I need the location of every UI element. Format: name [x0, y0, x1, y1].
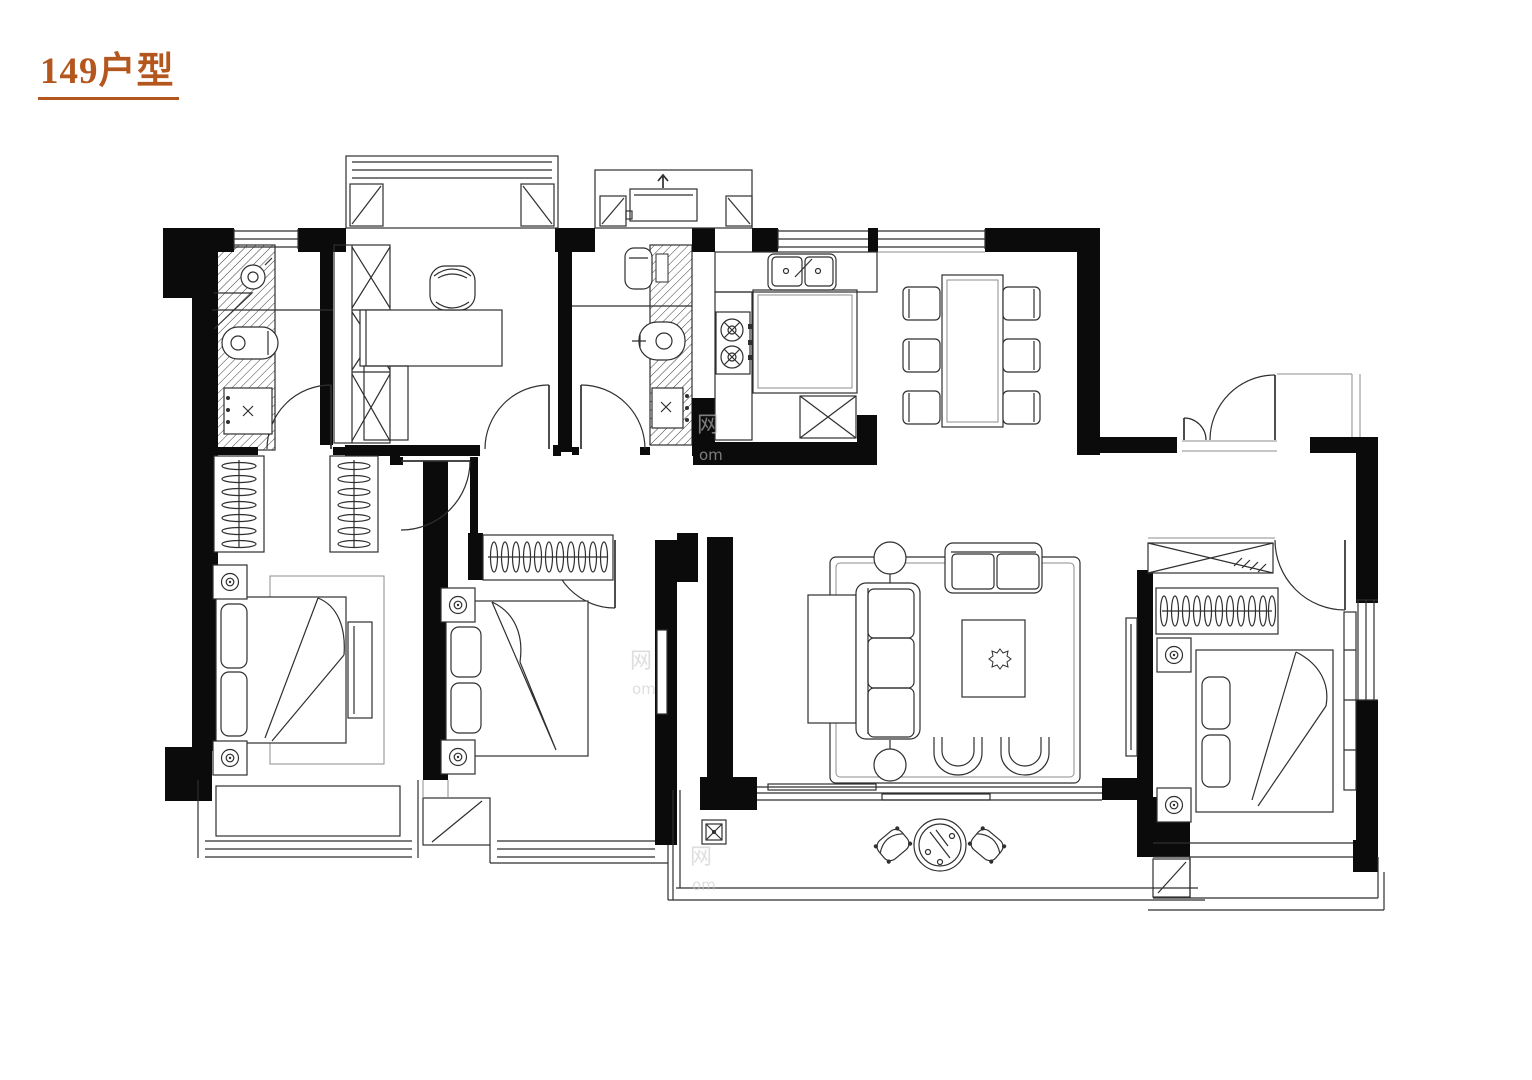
- dining-chair: [1003, 339, 1040, 372]
- floor-plan-page: 149户型: [0, 0, 1532, 1080]
- accent-chair: [1001, 737, 1049, 775]
- entry-niche-line: [1277, 374, 1360, 437]
- sink-icon: [632, 322, 685, 360]
- floor-lamp-icon: [874, 542, 906, 583]
- wardrobe: [330, 456, 378, 552]
- washer-icon: [652, 388, 689, 428]
- nightstand-lamp-icon: [213, 565, 247, 599]
- bed-bench: [348, 622, 372, 718]
- floor-drain-icon: [702, 820, 726, 844]
- loveseat: [945, 543, 1042, 593]
- toilet-icon: [222, 327, 278, 359]
- window-dining-top: [776, 229, 985, 252]
- nightstand-lamp-icon: [441, 740, 475, 774]
- svg-text:网: 网: [697, 413, 719, 438]
- kitchen-sink-icon: [768, 254, 836, 290]
- bedroom1-bay-window: [198, 780, 418, 858]
- bathroom2-door: [581, 385, 645, 449]
- floor-plan-drawing: 网 om 网 om 网 om: [0, 0, 1532, 1080]
- washer-icon: [224, 388, 272, 434]
- kitchen: [715, 252, 877, 440]
- balcony-table-icon: [914, 819, 966, 871]
- casement-sash-right: [521, 184, 554, 226]
- living-room: [808, 542, 1137, 783]
- bedroom2-bottom-window: [490, 841, 668, 900]
- double-bed: [1196, 650, 1333, 812]
- fridge-icon: [800, 396, 856, 438]
- balcony: [702, 819, 1007, 871]
- ac-outdoor-unit: [626, 175, 697, 221]
- nightstand-lamp-icon: [1157, 788, 1191, 822]
- svg-text:om: om: [632, 680, 656, 698]
- tv-panel: [1126, 618, 1137, 756]
- dining-chair: [1003, 391, 1040, 424]
- stove-icon: [716, 312, 753, 374]
- tv-panel: [657, 630, 667, 714]
- entry-main-door: [1182, 375, 1277, 451]
- svg-text:网: 网: [690, 845, 712, 870]
- desk-return: [364, 366, 408, 440]
- balcony-chair-icon: [873, 826, 913, 865]
- study-door: [485, 385, 549, 449]
- office-chair-icon: [430, 266, 475, 310]
- coffee-table: [962, 620, 1025, 697]
- console-table: [808, 595, 856, 723]
- master-bedroom-door: [1275, 540, 1345, 610]
- floor-lamp-icon: [874, 740, 906, 781]
- double-bed: [446, 601, 588, 756]
- ac-platform: [595, 170, 752, 228]
- nightstand-lamp-icon: [213, 741, 247, 775]
- wardrobe: [1156, 588, 1278, 634]
- casement-sash-left: [600, 196, 626, 226]
- entry-second-leaf: [1184, 418, 1206, 440]
- dining-table: [942, 275, 1003, 427]
- casement-sash-left: [350, 184, 383, 226]
- window-seat: [1344, 612, 1356, 790]
- sofa: [856, 583, 920, 739]
- svg-text:om: om: [699, 446, 723, 464]
- balcony-end-sash: [1153, 859, 1190, 897]
- dining-area: [903, 275, 1040, 427]
- wardrobe: [214, 456, 264, 552]
- middle-sash-bay: [423, 780, 490, 845]
- dining-chair: [903, 287, 940, 320]
- double-bed: [216, 597, 346, 743]
- nightstand-lamp-icon: [1157, 638, 1191, 672]
- wardrobe: [483, 535, 613, 580]
- plant-icon: [989, 649, 1011, 669]
- bedroom-1: [213, 456, 384, 775]
- dining-chair: [1003, 287, 1040, 320]
- closet-shelf-band: [1148, 543, 1273, 573]
- svg-text:om: om: [692, 876, 716, 894]
- casement-sash-right: [726, 196, 752, 226]
- window-master-right: [1356, 600, 1378, 700]
- master-bedroom: [1148, 543, 1356, 822]
- accent-chair: [934, 737, 982, 775]
- nightstand-lamp-icon: [441, 588, 475, 622]
- dining-chair: [903, 339, 940, 372]
- balcony-chair-icon: [967, 826, 1007, 865]
- study: [334, 245, 502, 443]
- study-bay-window: [346, 156, 558, 228]
- desk: [360, 310, 502, 366]
- dining-chair: [903, 391, 940, 424]
- svg-text:网: 网: [630, 649, 652, 674]
- window-kitchen-top-1: [778, 229, 868, 249]
